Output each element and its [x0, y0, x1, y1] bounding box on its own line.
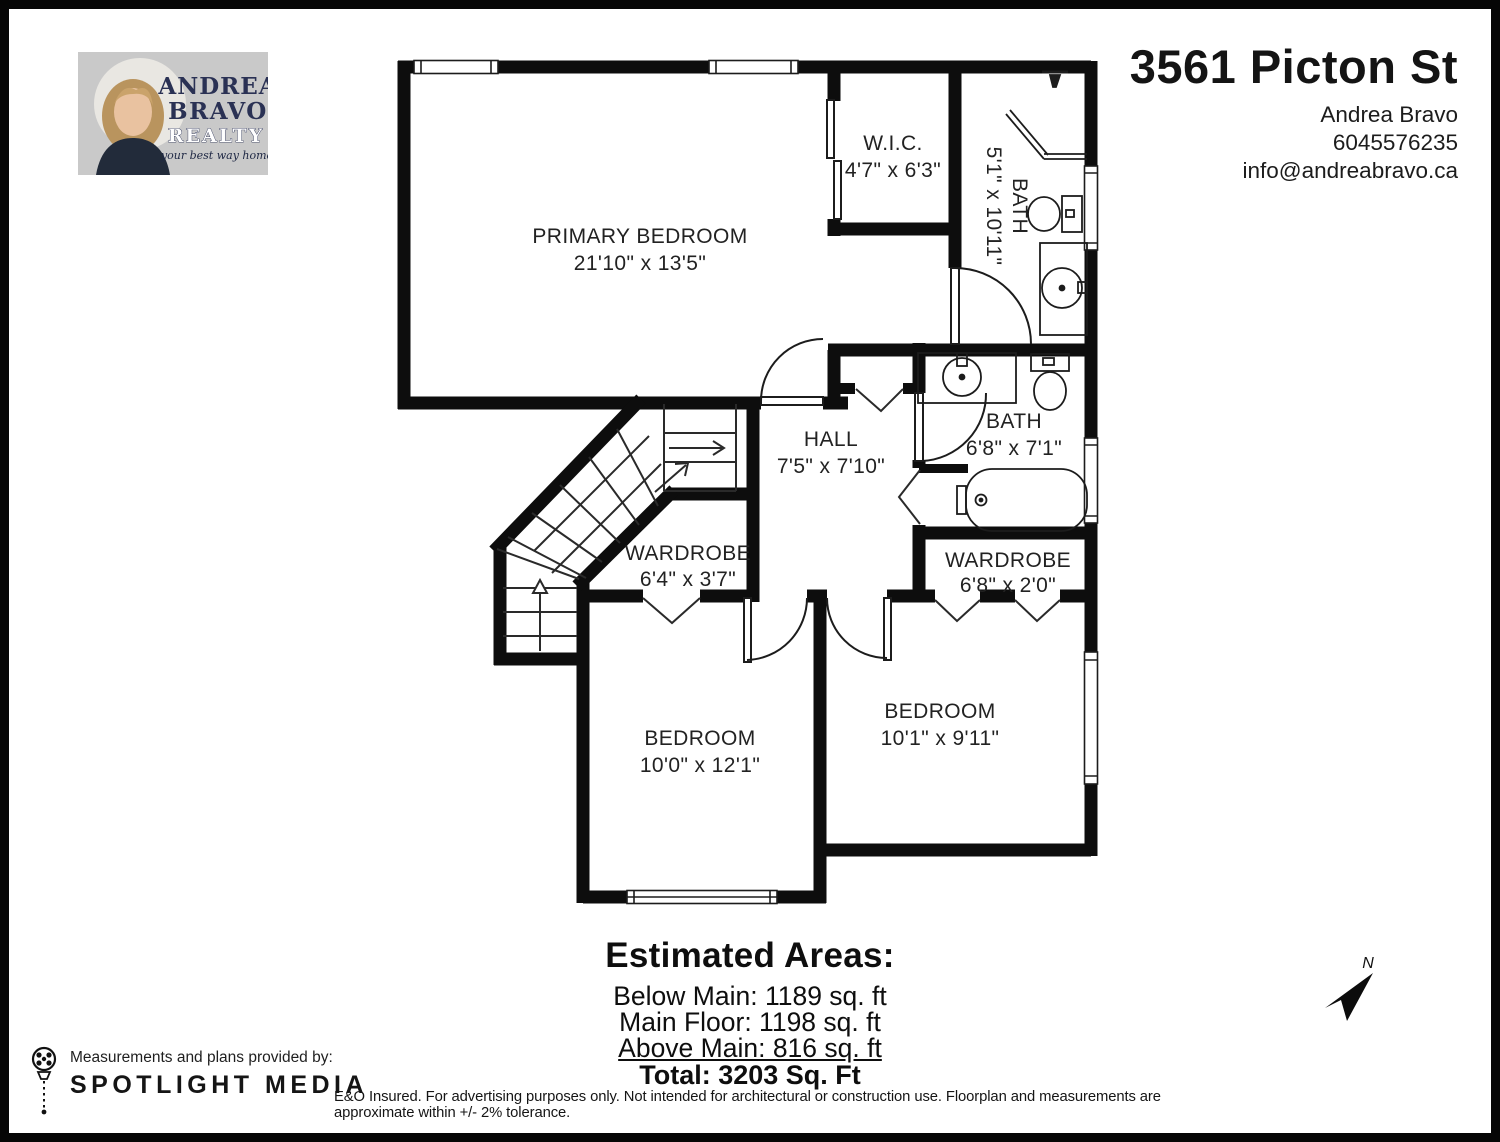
brokerage-logo: ANDREA BRAVO REALTY your best way home	[78, 52, 268, 175]
room-dims-wardrobe-2: 6'8" x 2'0"	[960, 574, 1056, 597]
staircase	[497, 404, 736, 651]
room-label-wardrobe-1: WARDROBE	[625, 542, 751, 565]
logo-tagline: your best way home	[160, 149, 268, 162]
flyer-page: PRIMARY BEDROOM 21'10" x 13'5" W.I.C. 4'…	[0, 0, 1500, 1142]
disclaimer-text: E&O Insured. For advertising purposes on…	[334, 1089, 1234, 1121]
agent-name: Andrea Bravo	[1130, 101, 1458, 129]
room-dims-bedroom-1: 10'0" x 12'1"	[640, 754, 760, 777]
estimated-areas: Estimated Areas: Below Main: 1189 sq. ft…	[375, 936, 1125, 1089]
room-label-bedroom-1: BEDROOM	[644, 727, 755, 750]
areas-title: Estimated Areas:	[375, 936, 1125, 976]
room-dims-hall: 7'5" x 7'10"	[777, 455, 885, 478]
area-total: Total: 3203 Sq. Ft	[375, 1061, 1125, 1089]
room-label-ensuite-bath: BATH	[1008, 178, 1031, 234]
area-main-floor: Main Floor: 1198 sq. ft	[375, 1009, 1125, 1035]
provider-name: SPOTLIGHT MEDIA	[70, 1071, 368, 1100]
spotlight-bulb-icon	[27, 1046, 61, 1118]
bath-fixtures	[918, 72, 1087, 531]
logo-name-line1: ANDREA	[157, 73, 268, 100]
room-label-wardrobe-2: WARDROBE	[945, 549, 1071, 572]
room-dims-ensuite-bath: 5'1" x 10'11"	[982, 147, 1005, 266]
toilet-icon	[1028, 196, 1082, 232]
agent-email: info@andreabravo.ca	[1130, 157, 1458, 185]
provider-credit: Measurements and plans provided by: SPOT…	[27, 1046, 368, 1118]
north-label: N	[1362, 955, 1374, 972]
room-label-hall: HALL	[804, 428, 858, 451]
sink-icon	[918, 353, 1016, 403]
room-dims-primary-bedroom: 21'10" x 13'5"	[574, 252, 706, 275]
listing-address: 3561 Picton St	[1130, 42, 1458, 93]
area-above-main: Above Main: 816 sq. ft	[375, 1035, 1125, 1061]
shower-glass	[1006, 110, 1087, 159]
area-below-main: Below Main: 1189 sq. ft	[375, 983, 1125, 1009]
room-label-wic: W.I.C.	[863, 132, 923, 155]
room-dims-wic: 4'7" x 6'3"	[845, 159, 941, 182]
sink-icon	[1040, 243, 1087, 335]
logo-name-line2: BRAVO	[168, 98, 268, 125]
north-arrow: N	[1325, 955, 1374, 1021]
room-label-bath: BATH	[986, 410, 1042, 433]
room-dims-bedroom-2: 10'1" x 9'11"	[881, 727, 1000, 750]
room-dims-bath: 6'8" x 7'1"	[966, 437, 1062, 460]
room-label-bedroom-2: BEDROOM	[884, 700, 995, 723]
room-label-primary-bedroom: PRIMARY BEDROOM	[532, 225, 747, 248]
listing-header: 3561 Picton St Andrea Bravo 6045576235 i…	[1130, 42, 1458, 185]
room-dims-wardrobe-1: 6'4" x 3'7"	[640, 568, 736, 591]
logo-realty-label: REALTY	[168, 125, 265, 147]
provider-prefix: Measurements and plans provided by:	[70, 1049, 368, 1067]
agent-phone: 6045576235	[1130, 129, 1458, 157]
bathtub-icon	[957, 469, 1087, 531]
toilet-icon	[1031, 354, 1069, 410]
